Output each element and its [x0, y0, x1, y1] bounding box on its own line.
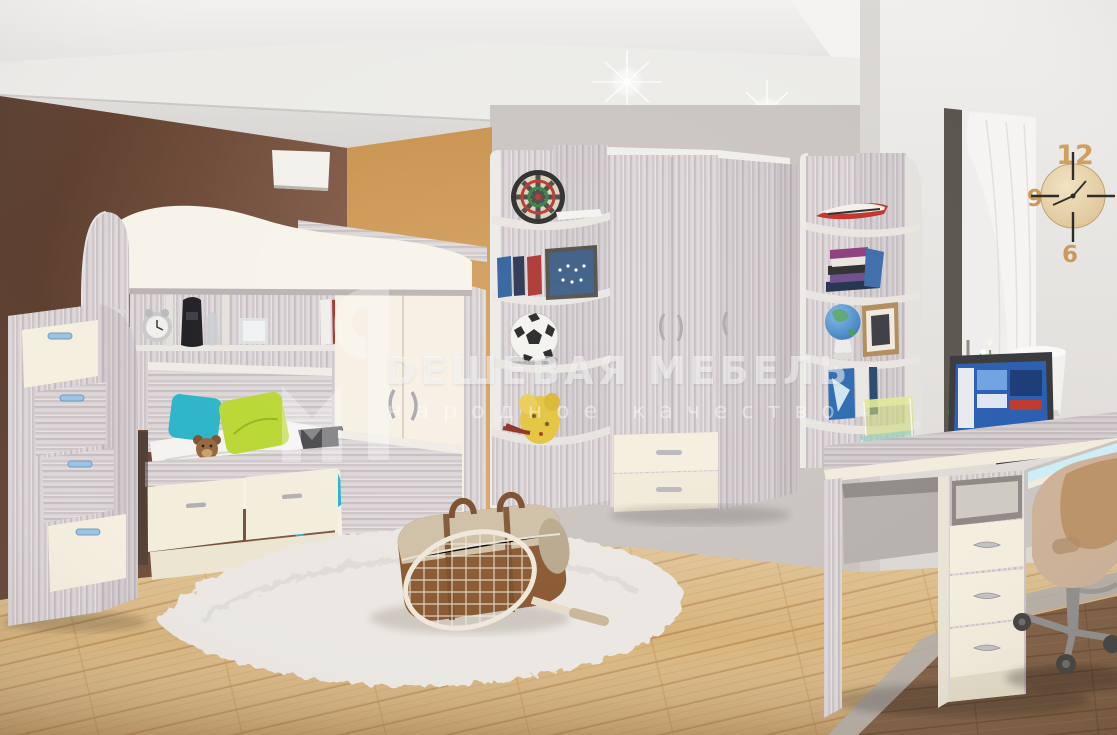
room-photo: 12 9 6 [0, 0, 1117, 735]
room-scene: 12 9 6 [0, 0, 1117, 735]
light-overlay [0, 0, 1117, 735]
